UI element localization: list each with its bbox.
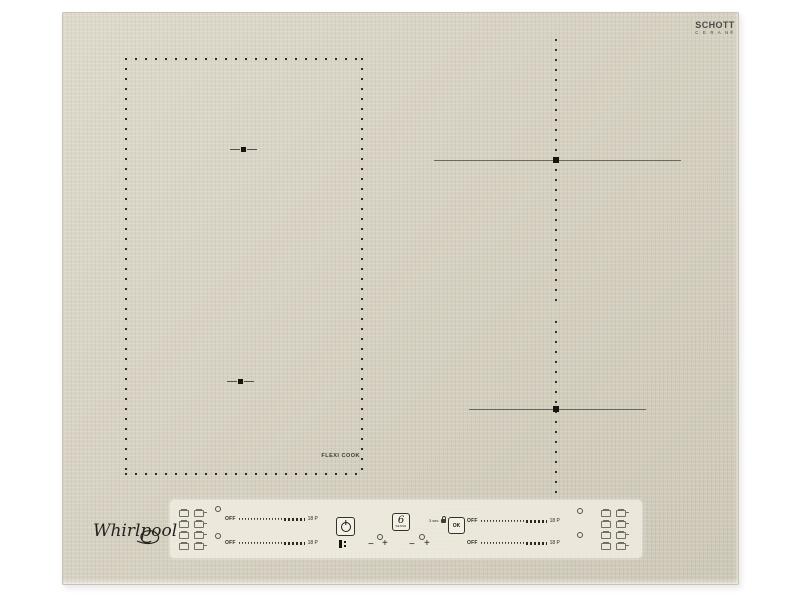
zone-top-vertical-dotted-line xyxy=(555,39,557,301)
induction-hob-surface: SCHOTT C E R A N® FLEXI COOK xyxy=(62,12,739,585)
left-slider-2[interactable]: OFF 18 P xyxy=(225,540,318,546)
product-photo: SCHOTT C E R A N® FLEXI COOK xyxy=(0,0,800,600)
flexi-cook-zone: FLEXI COOK xyxy=(125,58,363,475)
flexi-zone-border-top xyxy=(125,58,363,60)
power-slider-track[interactable] xyxy=(481,520,547,523)
marker-dot xyxy=(238,379,243,384)
power-slider-track[interactable] xyxy=(239,542,305,545)
power-button[interactable] xyxy=(336,517,355,536)
cookware-icon[interactable] xyxy=(194,532,204,539)
sixth-sense-caption: SENSE xyxy=(396,525,407,528)
cookware-icon[interactable] xyxy=(179,543,189,550)
ok-button-label: OK xyxy=(453,523,461,529)
hold-label: 3 sec xyxy=(429,518,439,523)
ok-button[interactable]: OK xyxy=(448,517,465,534)
power-icon xyxy=(341,522,351,532)
indicator-dot xyxy=(577,508,583,514)
cookware-icon[interactable] xyxy=(179,532,189,539)
lock-icon xyxy=(441,519,446,523)
schott-logo-line2: C E R A N® xyxy=(687,30,743,36)
minus-button[interactable]: − xyxy=(368,540,374,550)
off-label: OFF xyxy=(225,540,236,546)
cookware-icon[interactable] xyxy=(616,543,626,550)
cookware-icon[interactable] xyxy=(616,510,626,517)
hold-3sec: 3 sec xyxy=(429,518,446,523)
max-level-label: 18 P xyxy=(308,540,318,546)
right-function-icons xyxy=(601,510,631,554)
flexi-zone-border-bottom xyxy=(125,473,363,475)
cookware-icon[interactable] xyxy=(194,543,204,550)
marker-line xyxy=(247,149,257,150)
indicator-dot xyxy=(215,506,221,512)
indicator-dot xyxy=(577,532,583,538)
zone-bottom-center-dot xyxy=(553,406,559,412)
right-slider-2[interactable]: OFF 18 P xyxy=(467,540,560,546)
cookware-icon[interactable] xyxy=(179,510,189,517)
flexi-zone-border-left xyxy=(125,58,127,475)
off-label: OFF xyxy=(467,518,478,524)
key-lock-icon xyxy=(339,540,342,548)
cookware-icon[interactable] xyxy=(616,521,626,528)
left-slider-1[interactable]: OFF 18 P xyxy=(225,516,318,522)
schott-logo-line1: SCHOTT xyxy=(687,21,743,30)
sixth-sense-button[interactable]: 6 SENSE xyxy=(392,513,410,531)
plus-button[interactable]: + xyxy=(382,539,388,549)
flexi-zone-marker-bottom xyxy=(227,379,254,384)
max-level-label: 18 P xyxy=(550,540,560,546)
cookware-icon[interactable] xyxy=(194,521,204,528)
plus-button[interactable]: + xyxy=(424,539,430,549)
cookware-icon[interactable] xyxy=(194,510,204,517)
indicator-dot xyxy=(215,533,221,539)
cookware-icon[interactable] xyxy=(601,521,611,528)
flexi-zone-marker-top xyxy=(230,147,257,152)
minus-button[interactable]: − xyxy=(409,540,415,550)
marker-line xyxy=(227,381,237,382)
whirlpool-logo-text: Whirlpool xyxy=(93,521,177,541)
cookware-icon[interactable] xyxy=(616,532,626,539)
marker-dot xyxy=(241,147,246,152)
flexi-cook-label: FLEXI COOK xyxy=(321,453,360,459)
off-label: OFF xyxy=(467,540,478,546)
cookware-icon[interactable] xyxy=(601,543,611,550)
right-slider-1[interactable]: OFF 18 P xyxy=(467,518,560,524)
cookware-icon[interactable] xyxy=(179,521,189,528)
max-level-label: 18 P xyxy=(308,516,318,522)
whirlpool-logo: Whirlpool xyxy=(91,510,187,550)
left-function-icons xyxy=(179,510,209,554)
off-label: OFF xyxy=(225,516,236,522)
cookware-icon[interactable] xyxy=(601,510,611,517)
marker-line xyxy=(244,381,254,382)
max-level-label: 18 P xyxy=(550,518,560,524)
zone-top-center-dot xyxy=(553,157,559,163)
schott-ceran-logo: SCHOTT C E R A N® xyxy=(687,21,743,36)
flexi-zone-border-right xyxy=(361,58,363,475)
marker-line xyxy=(230,149,240,150)
cookware-icon[interactable] xyxy=(601,532,611,539)
power-slider-track[interactable] xyxy=(239,518,305,521)
power-slider-track[interactable] xyxy=(481,542,547,545)
